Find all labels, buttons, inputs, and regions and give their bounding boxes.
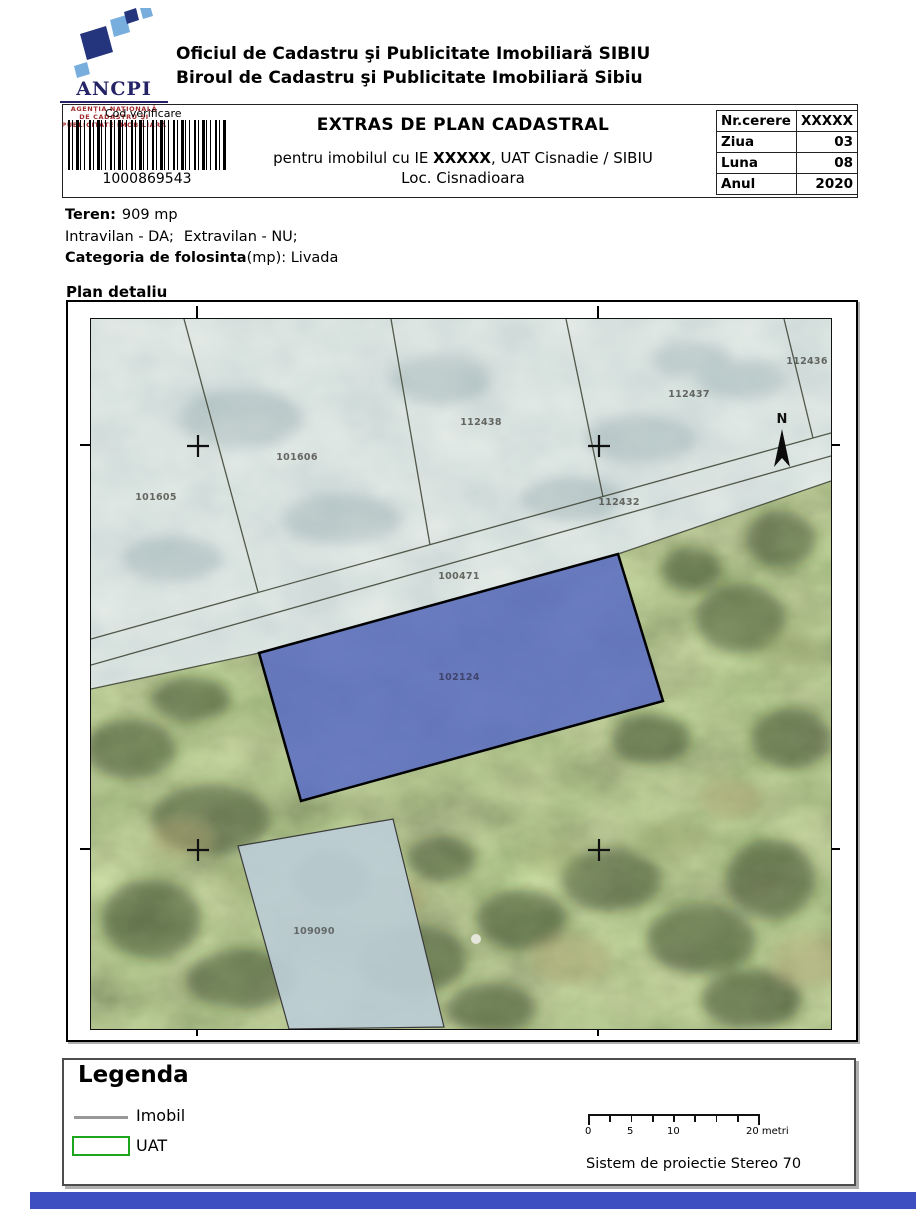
scale-tick [737, 1116, 739, 1122]
parcel-label: 112438 [460, 417, 502, 428]
parcel-label: 112432 [598, 497, 639, 508]
aerial-imagery: N 101605 101606 112438 112437 112436 112… [90, 318, 832, 1030]
document-title-block: EXTRAS DE PLAN CADASTRAL pentru imobilul… [248, 115, 678, 188]
subtitle-prefix: pentru imobilul cu IE [273, 149, 433, 167]
parcel-label: 112437 [668, 389, 709, 400]
map-frame: N 101605 101606 112438 112437 112436 112… [66, 300, 858, 1042]
office-header-line1: Oficiul de Cadastru şi Publicitate Imobi… [176, 42, 650, 66]
table-row: Anul 2020 [717, 174, 858, 195]
scale-tick [716, 1116, 718, 1122]
imobil-legend-label: Imobil [136, 1106, 185, 1125]
terrain-spot [471, 934, 481, 944]
cadastral-map: N 101605 101606 112438 112437 112436 112… [91, 319, 831, 1029]
teren-label: Teren: [65, 207, 116, 223]
projection-system-label: Sistem de proiectie Stereo 70 [586, 1156, 801, 1172]
scale-bar: 0 5 10 20 metri [588, 1114, 760, 1140]
parcel-label: 101606 [276, 452, 318, 463]
grid-tick [597, 306, 599, 318]
day-value: 03 [796, 132, 857, 153]
scale-tick [673, 1116, 675, 1122]
grid-tick [80, 444, 90, 446]
office-header-line2: Biroul de Cadastru şi Publicitate Imobil… [176, 66, 650, 90]
verification-code-label: Cod verificare [105, 107, 182, 120]
scale-tick [652, 1116, 654, 1122]
parcel-label: 109090 [293, 926, 335, 937]
categoria-line: Categoria de folosinta(mp): Livada [65, 248, 338, 270]
north-label: N [777, 412, 788, 427]
legend-box: Legenda Imobil UAT 0 5 10 20 metri Siste… [62, 1058, 856, 1186]
grid-tick [196, 306, 198, 318]
scale-tick [631, 1116, 633, 1122]
teren-value: 909 mp [122, 207, 178, 223]
teren-info: Teren:909 mp Intravilan - DA;Extravilan … [65, 205, 338, 270]
year-label: Anul [717, 174, 797, 195]
scale-label-5: 5 [627, 1126, 633, 1137]
request-number-label: Nr.cerere [717, 111, 797, 132]
ancpi-logo-icon [66, 8, 162, 78]
table-row: Ziua 03 [717, 132, 858, 153]
scale-tick [758, 1116, 760, 1125]
verification-code-value: 1000869543 [68, 171, 226, 187]
uat-rect-swatch [72, 1136, 130, 1156]
info-strip: Cod verificare 1000869543 EXTRAS DE PLAN… [62, 104, 858, 198]
scale-label-20: 20 metri [746, 1126, 789, 1137]
office-header: Oficiul de Cadastru şi Publicitate Imobi… [176, 42, 650, 90]
map-section-title: Plan detaliu [66, 284, 167, 300]
request-number-value: XXXXX [796, 111, 857, 132]
cadastral-extract-page: ANCPI AGENŢIA NAŢIONALĂ DE CADASTRU ŞI P… [0, 0, 916, 1211]
document-subtitle: pentru imobilul cu IE XXXXX, UAT Cisnadi… [248, 148, 678, 168]
table-row: Luna 08 [717, 153, 858, 174]
scale-tick [694, 1116, 696, 1122]
scale-label-10: 10 [667, 1126, 680, 1137]
scale-label-0: 0 [585, 1126, 591, 1137]
scale-tick [609, 1116, 611, 1122]
year-value: 2020 [796, 174, 857, 195]
extravilan-value: Extravilan - NU; [184, 229, 298, 245]
barcode [68, 120, 226, 170]
uat-legend-label: UAT [136, 1136, 167, 1155]
categoria-label: Categoria de folosinta [65, 250, 247, 266]
imobil-parcel-label: 102124 [438, 672, 480, 683]
legend-title: Legenda [78, 1062, 189, 1088]
document-title: EXTRAS DE PLAN CADASTRAL [248, 115, 678, 135]
parcel-label: 112436 [786, 356, 828, 367]
scale-tick [588, 1116, 590, 1125]
bottom-blue-bar [30, 1192, 916, 1209]
intravilan-value: Intravilan - DA; [65, 229, 174, 245]
parcel-label: 101605 [135, 492, 176, 503]
subtitle-ie-number: XXXXX [433, 149, 491, 167]
categoria-value: (mp): Livada [247, 250, 339, 266]
teren-line: Teren:909 mp [65, 205, 338, 227]
day-label: Ziua [717, 132, 797, 153]
document-locality: Loc. Cisnadioara [248, 168, 678, 188]
intravilan-line: Intravilan - DA;Extravilan - NU; [65, 227, 338, 249]
grid-tick [80, 848, 90, 850]
imobil-line-swatch [74, 1116, 128, 1119]
month-label: Luna [717, 153, 797, 174]
request-table: Nr.cerere XXXXX Ziua 03 Luna 08 Anul 202… [716, 110, 858, 195]
month-value: 08 [796, 153, 857, 174]
table-row: Nr.cerere XXXXX [717, 111, 858, 132]
ancpi-acronym: ANCPI [60, 78, 168, 103]
parcel-label: 100471 [438, 571, 479, 582]
subtitle-suffix: , UAT Cisnadie / SIBIU [491, 149, 653, 167]
